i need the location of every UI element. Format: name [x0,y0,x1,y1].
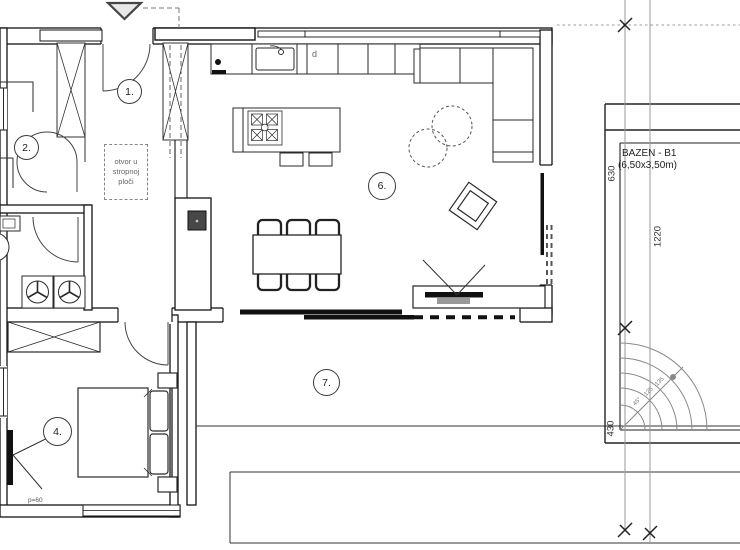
bar-stool [280,153,303,166]
kitchen-group [211,44,420,166]
bedroom4-door-swing [125,322,168,365]
dining-table [253,235,341,274]
bed [78,388,148,477]
bottom-window [83,505,180,516]
dimension-lines-group [557,0,740,543]
dimension-630: 630 [607,159,618,189]
room-number-entry: 1. [117,79,142,104]
ceiling-opening-note: otvor u stropnoj ploči [104,144,148,200]
sofa-group [414,48,533,162]
tv-unit-group [413,260,545,308]
nightstand [158,373,177,388]
entrance-arrow-icon [108,3,141,19]
dimension-1220: 1220 [653,217,664,257]
pool-title: BAZEN - B1 [622,148,676,159]
pillow [150,391,168,431]
dishwasher-label: d [312,49,317,59]
pillow [150,434,168,474]
dining-group [253,220,341,290]
pool-slope-arcs [620,343,707,430]
room-number-terrace: 7. [313,369,340,396]
armchair-square [449,182,496,229]
pouf-circles [409,106,472,167]
tv-screen [425,292,483,298]
pool-size: (6,50x3,50m) [618,160,677,171]
nightstand [158,477,177,492]
floor-plan-drawing [0,0,740,550]
bar-stool [309,153,332,166]
bath-door-swing [33,217,78,262]
entry-door-panel [155,28,255,40]
bedroom-tv [7,430,13,485]
room-number-bedroom4: 4. [43,417,72,446]
bed-note-label: p=60 [28,497,43,504]
dimension-430: 430 [606,414,617,444]
room-number-living: 6. [368,172,396,200]
entrance-marker [108,3,179,28]
room-number-bedroom2: 2. [14,135,39,160]
floor-plan: 1. 2. 4. 6. 7. otvor u stropnoj ploči d … [0,0,740,550]
dimension-ticks [618,18,657,540]
bedroom4-group [7,322,177,492]
washing-machines [22,276,85,308]
